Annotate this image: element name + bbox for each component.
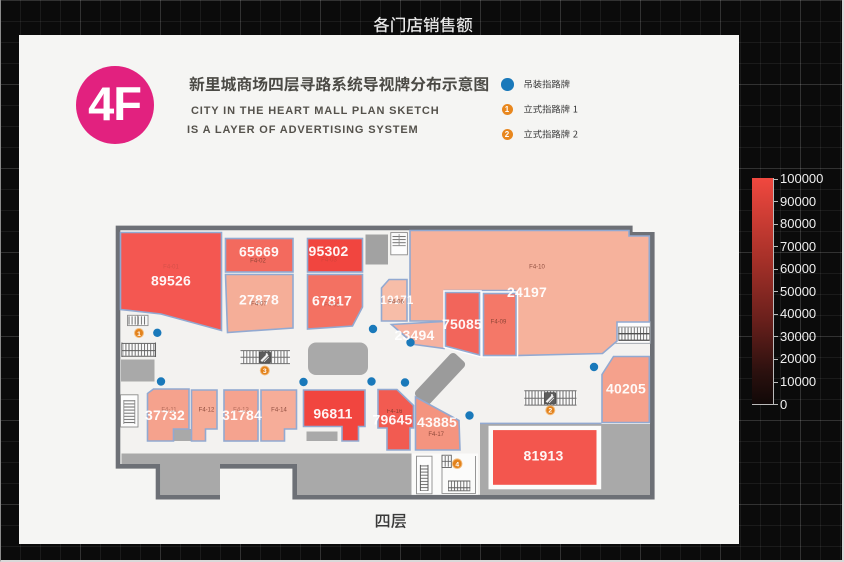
- svg-text:1: 1: [137, 331, 141, 338]
- svg-text:F4-12: F4-12: [199, 408, 215, 414]
- svg-text:65669: 65669: [239, 244, 279, 260]
- svg-text:F4-17: F4-17: [428, 432, 444, 438]
- svg-text:F4-16: F4-16: [387, 409, 403, 415]
- svg-text:F4-02: F4-02: [250, 258, 266, 264]
- svg-text:F4-10: F4-10: [529, 265, 545, 271]
- svg-text:96811: 96811: [313, 405, 352, 421]
- svg-text:F4-07: F4-07: [251, 301, 267, 307]
- svg-text:F4-09: F4-09: [491, 319, 507, 325]
- svg-text:F4-06: F4-06: [388, 299, 404, 305]
- svg-text:40205: 40205: [606, 380, 646, 396]
- svg-text:24197: 24197: [507, 284, 547, 300]
- svg-text:F4-08: F4-08: [324, 302, 340, 308]
- svg-text:3: 3: [263, 368, 267, 375]
- svg-text:89526: 89526: [151, 273, 191, 289]
- svg-text:F4-13: F4-13: [233, 408, 249, 414]
- svg-text:F4-14: F4-14: [271, 408, 287, 414]
- svg-text:75085: 75085: [442, 316, 482, 332]
- svg-text:81913: 81913: [524, 448, 564, 464]
- svg-text:4: 4: [455, 461, 459, 468]
- svg-text:F4-03: F4-03: [321, 258, 337, 264]
- svg-text:F4-01: F4-01: [163, 264, 179, 270]
- svg-text:43885: 43885: [417, 414, 457, 430]
- svg-text:F4-11: F4-11: [161, 408, 177, 414]
- svg-text:23494: 23494: [395, 327, 435, 343]
- svg-text:2: 2: [548, 408, 552, 415]
